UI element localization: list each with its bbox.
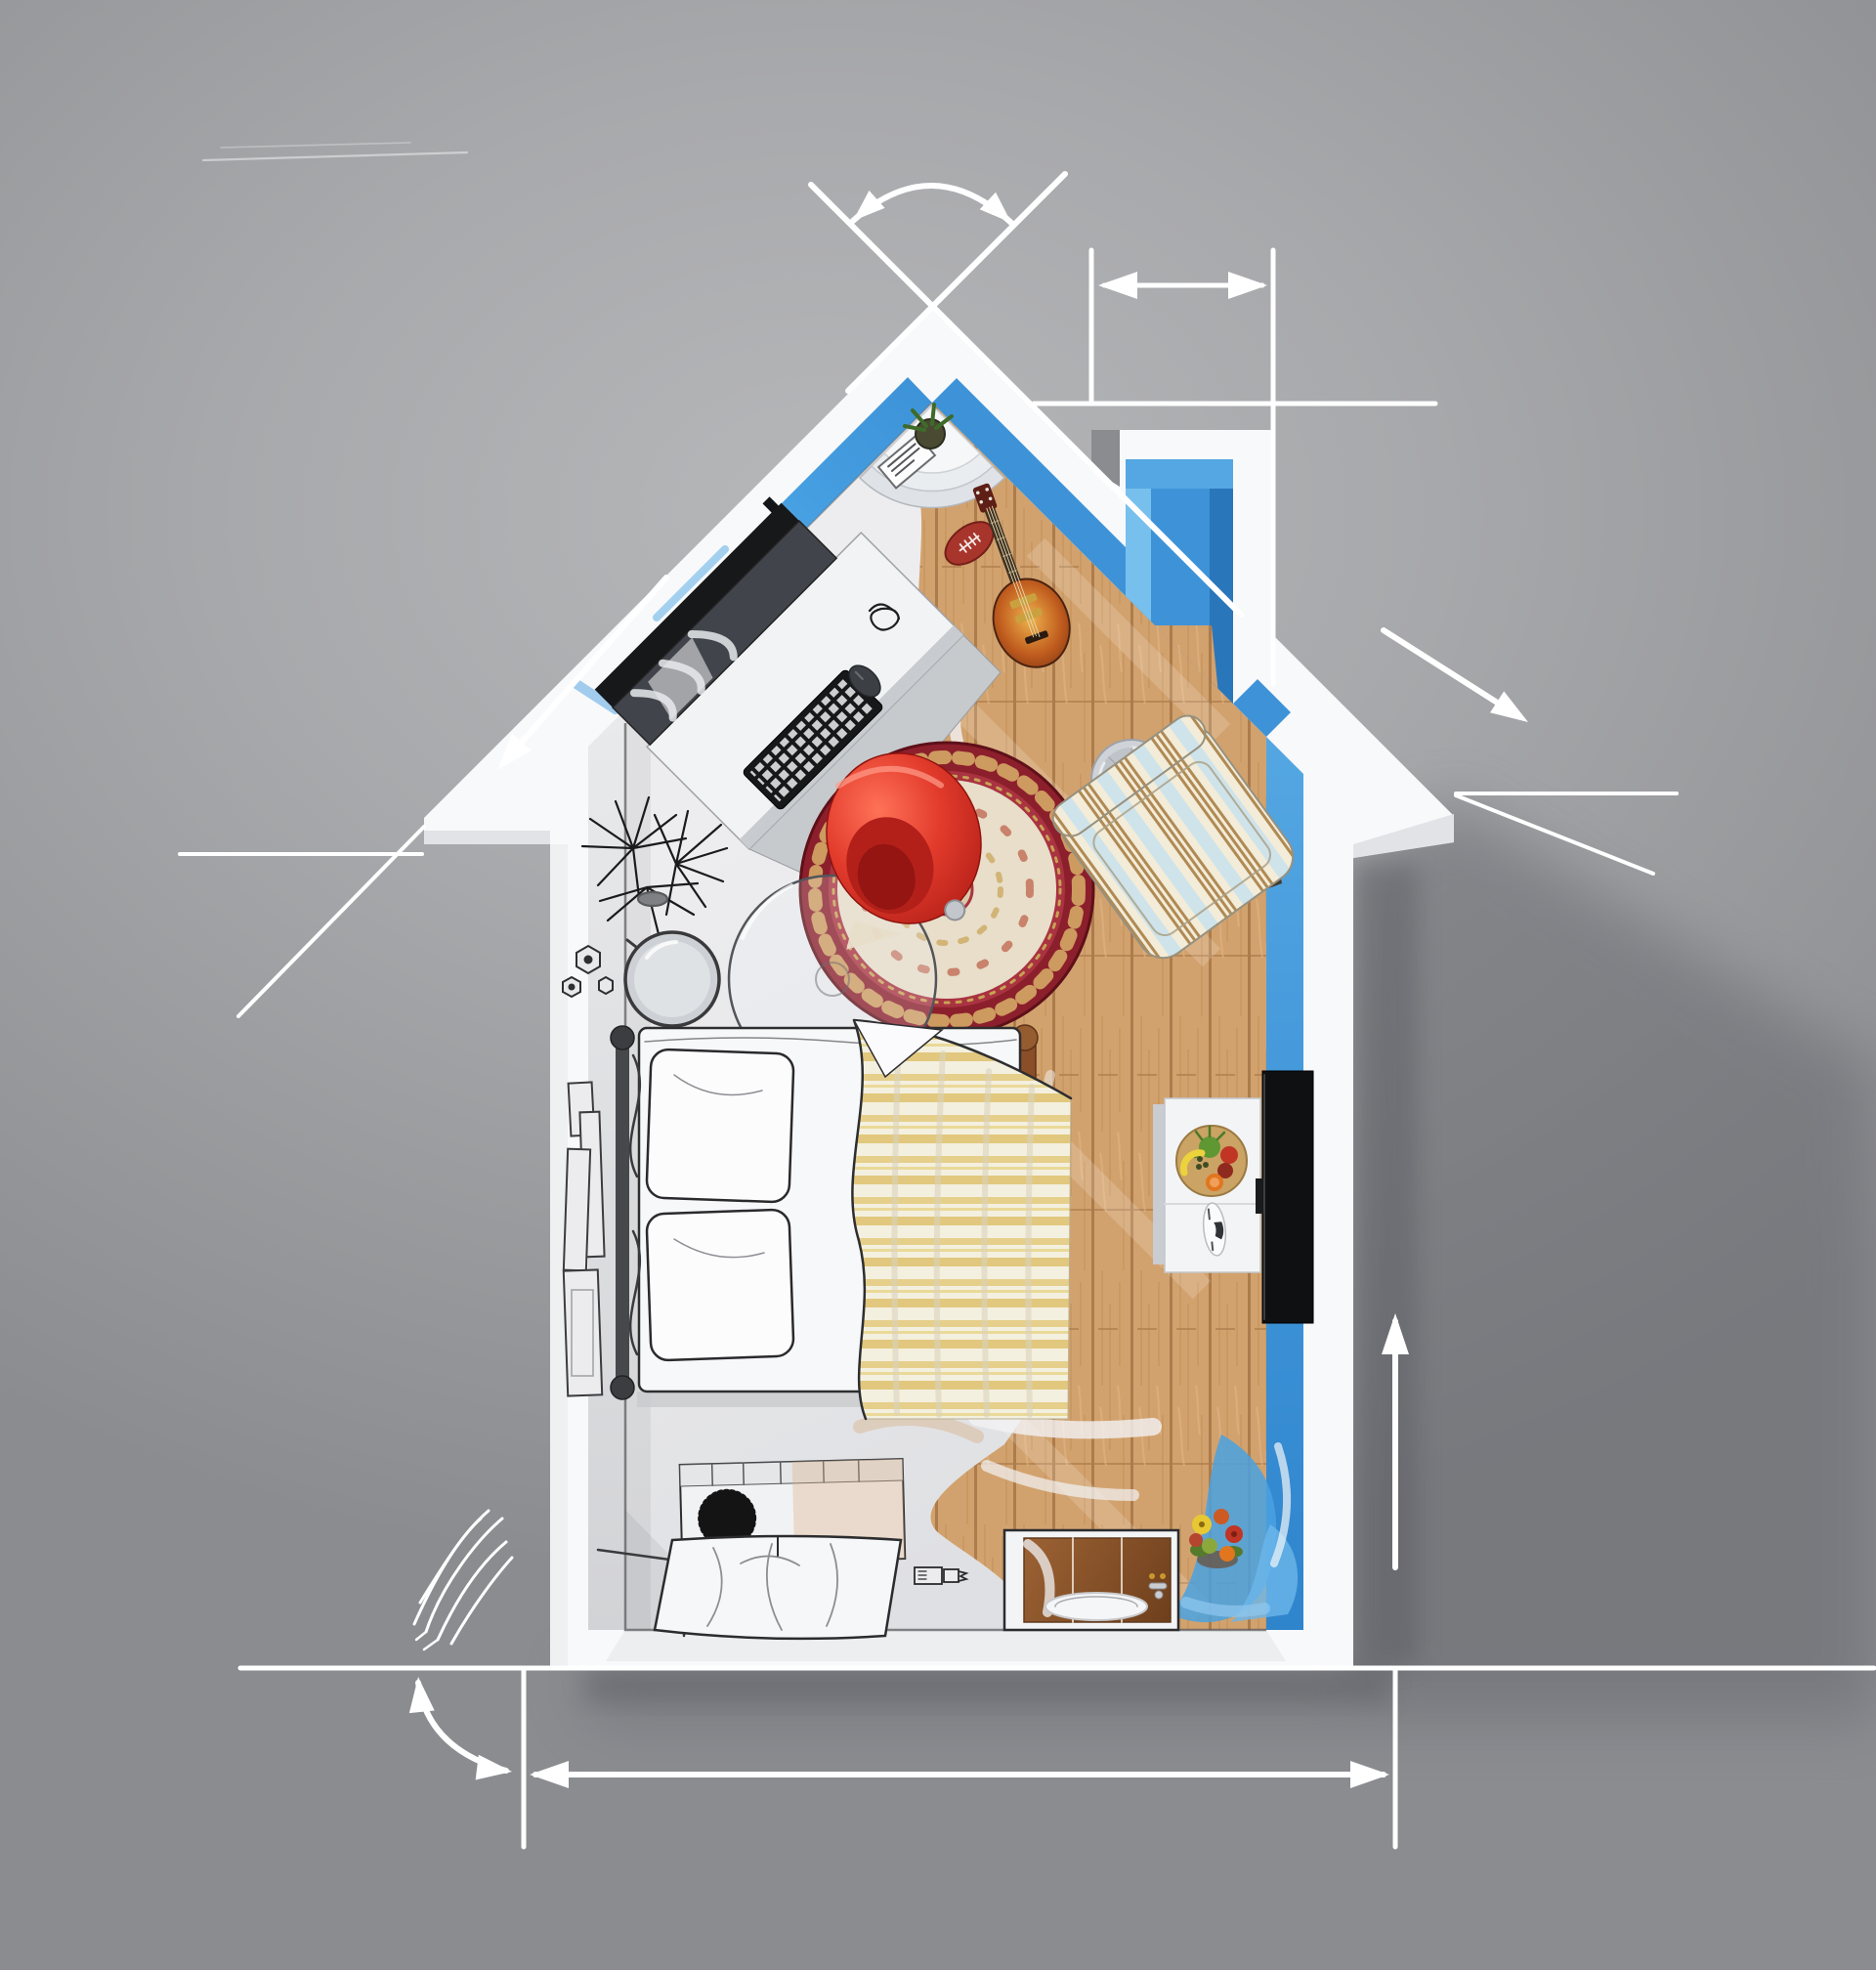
faint-sketch-line — [221, 143, 410, 148]
blanket — [852, 1020, 1071, 1419]
fruit-bowl — [1176, 1126, 1247, 1196]
right-roof-arrowhead — [1490, 691, 1535, 733]
bed — [611, 1020, 1071, 1419]
chimney-arrowhead-left — [1098, 272, 1137, 299]
scene-canvas — [0, 0, 1876, 1970]
chimney-arrowhead-right — [1228, 272, 1267, 299]
hatch-scribble — [414, 1511, 512, 1649]
width-dim-arrowhead-right — [1350, 1761, 1389, 1788]
mirror — [625, 932, 719, 1026]
faint-sketch-line — [203, 152, 467, 160]
corner-angle-arc — [418, 1683, 506, 1771]
sink-vanity — [1004, 1530, 1178, 1630]
left-eave-underside — [424, 831, 550, 844]
width-dim-arrowhead-left — [530, 1761, 569, 1788]
tv-console — [1153, 1098, 1260, 1272]
tv — [1256, 1071, 1313, 1323]
house-plan-render — [0, 0, 1876, 1970]
corner-arc-arrowhead-top — [405, 1676, 435, 1714]
gadget-sketch — [915, 1567, 966, 1584]
